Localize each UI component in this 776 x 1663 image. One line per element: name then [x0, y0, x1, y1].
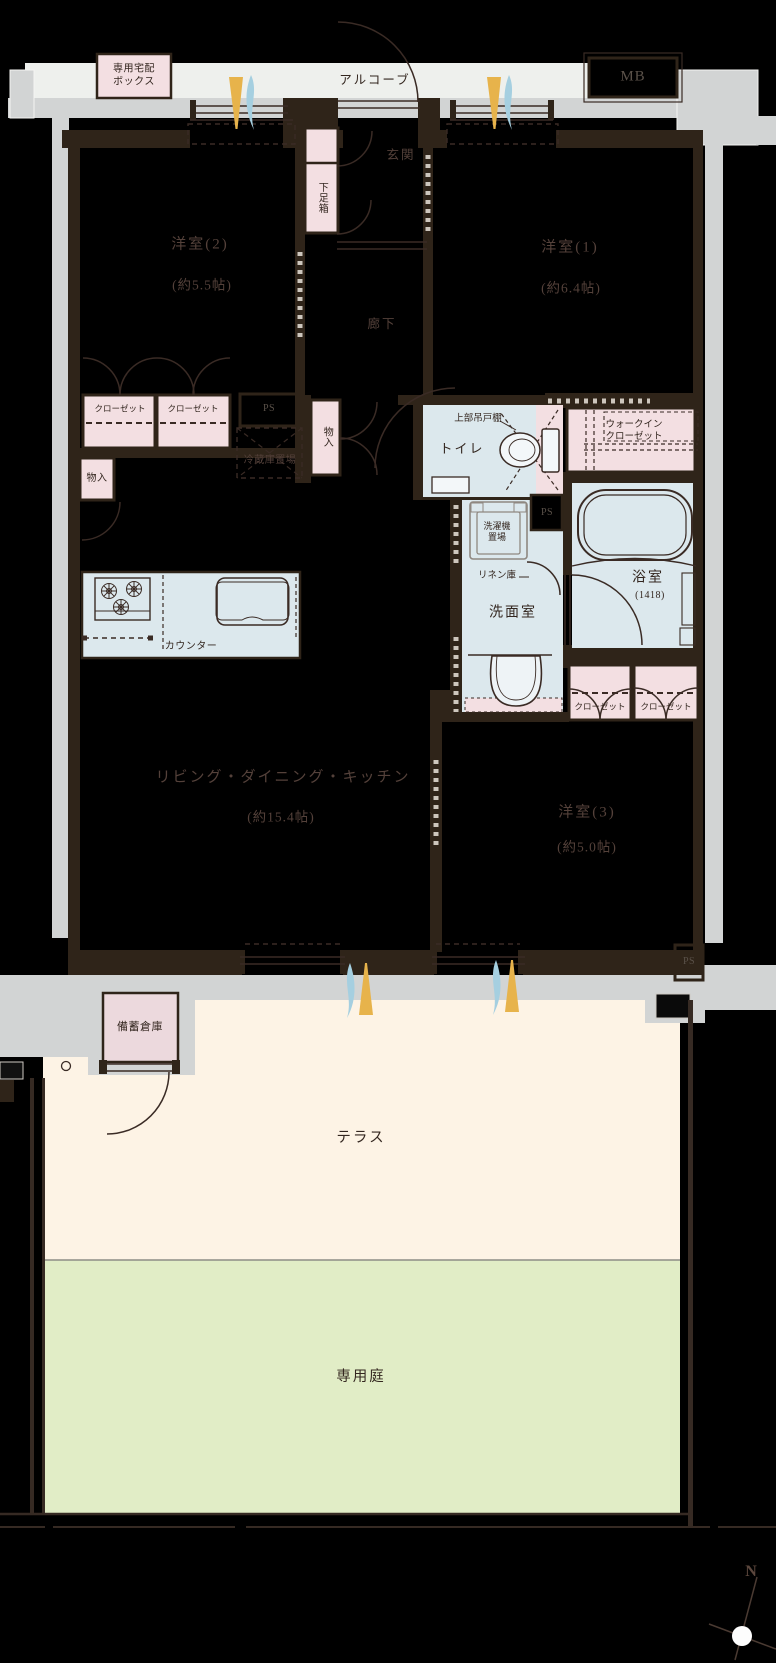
- label-linen: リネン庫: [478, 571, 516, 583]
- label-washer: 洗濯機置場: [483, 521, 510, 544]
- label-storage-left: 物入: [87, 473, 108, 486]
- compass: [709, 1577, 776, 1660]
- label-meter-box: MB: [620, 68, 645, 87]
- building-structure: [0, 63, 776, 1527]
- label-bath-size: (1418): [635, 590, 665, 603]
- label-compass-n: N: [745, 1562, 757, 1582]
- label-ldk-name: リビング・ダイニング・キッチン: [155, 769, 410, 788]
- bathroom: [572, 483, 693, 648]
- garden-area: [43, 1260, 680, 1513]
- label-room1-size: (約6.4帖): [541, 281, 601, 298]
- label-stockpile: 備蓄倉庫: [117, 1021, 163, 1035]
- label-garden: 専用庭: [336, 1368, 386, 1386]
- label-shoe-box: 下足箱: [315, 182, 328, 214]
- label-washroom: 洗面室: [489, 604, 537, 622]
- label-refrigerator: 冷蔵庫置場: [244, 455, 297, 468]
- label-wic: ウォークインクローゼット: [605, 420, 662, 444]
- label-upper-cabinet: 上部吊戸棚: [454, 414, 502, 426]
- label-toilet: トイレ: [439, 441, 484, 457]
- label-room3-size: (約5.0帖): [557, 840, 617, 857]
- label-bath-name: 浴室: [632, 569, 664, 587]
- label-terrace: テラス: [336, 1129, 385, 1147]
- label-closet-b: クローゼット: [167, 404, 218, 415]
- window-ldk: [238, 950, 347, 974]
- label-ps-3: PS: [683, 956, 695, 969]
- label-corridor: 廊下: [367, 317, 396, 333]
- label-room2-name: 洋室(2): [171, 236, 229, 255]
- label-ldk-size: (約15.4帖): [247, 810, 315, 827]
- label-storage-hall: 物入: [320, 427, 333, 448]
- label-closet-a: クローゼット: [94, 404, 145, 415]
- room-fills: [80, 53, 703, 1062]
- shoe-box: [305, 128, 338, 233]
- label-delivery-box: 専用宅配ボックス: [113, 64, 155, 89]
- label-ps-1: PS: [263, 403, 275, 416]
- label-alcove: アルコーブ: [339, 73, 410, 89]
- label-entrance: 玄関: [386, 148, 415, 164]
- label-closet-d: クローゼット: [640, 702, 691, 713]
- compass-circle: [732, 1626, 752, 1646]
- floor-plan-drawing: [0, 0, 776, 1663]
- label-room2-size: (約5.5帖): [172, 278, 232, 295]
- label-room1-name: 洋室(1): [541, 239, 599, 258]
- label-ps-2: PS: [541, 507, 553, 520]
- label-closet-c: クローゼット: [574, 702, 625, 713]
- floor-plan: アルコーブ 専用宅配ボックス MB 玄関 下足箱 洋室(2) (約5.5帖) 洋…: [0, 0, 776, 1663]
- label-room3-name: 洋室(3): [558, 804, 616, 823]
- label-counter: カウンター: [165, 641, 218, 654]
